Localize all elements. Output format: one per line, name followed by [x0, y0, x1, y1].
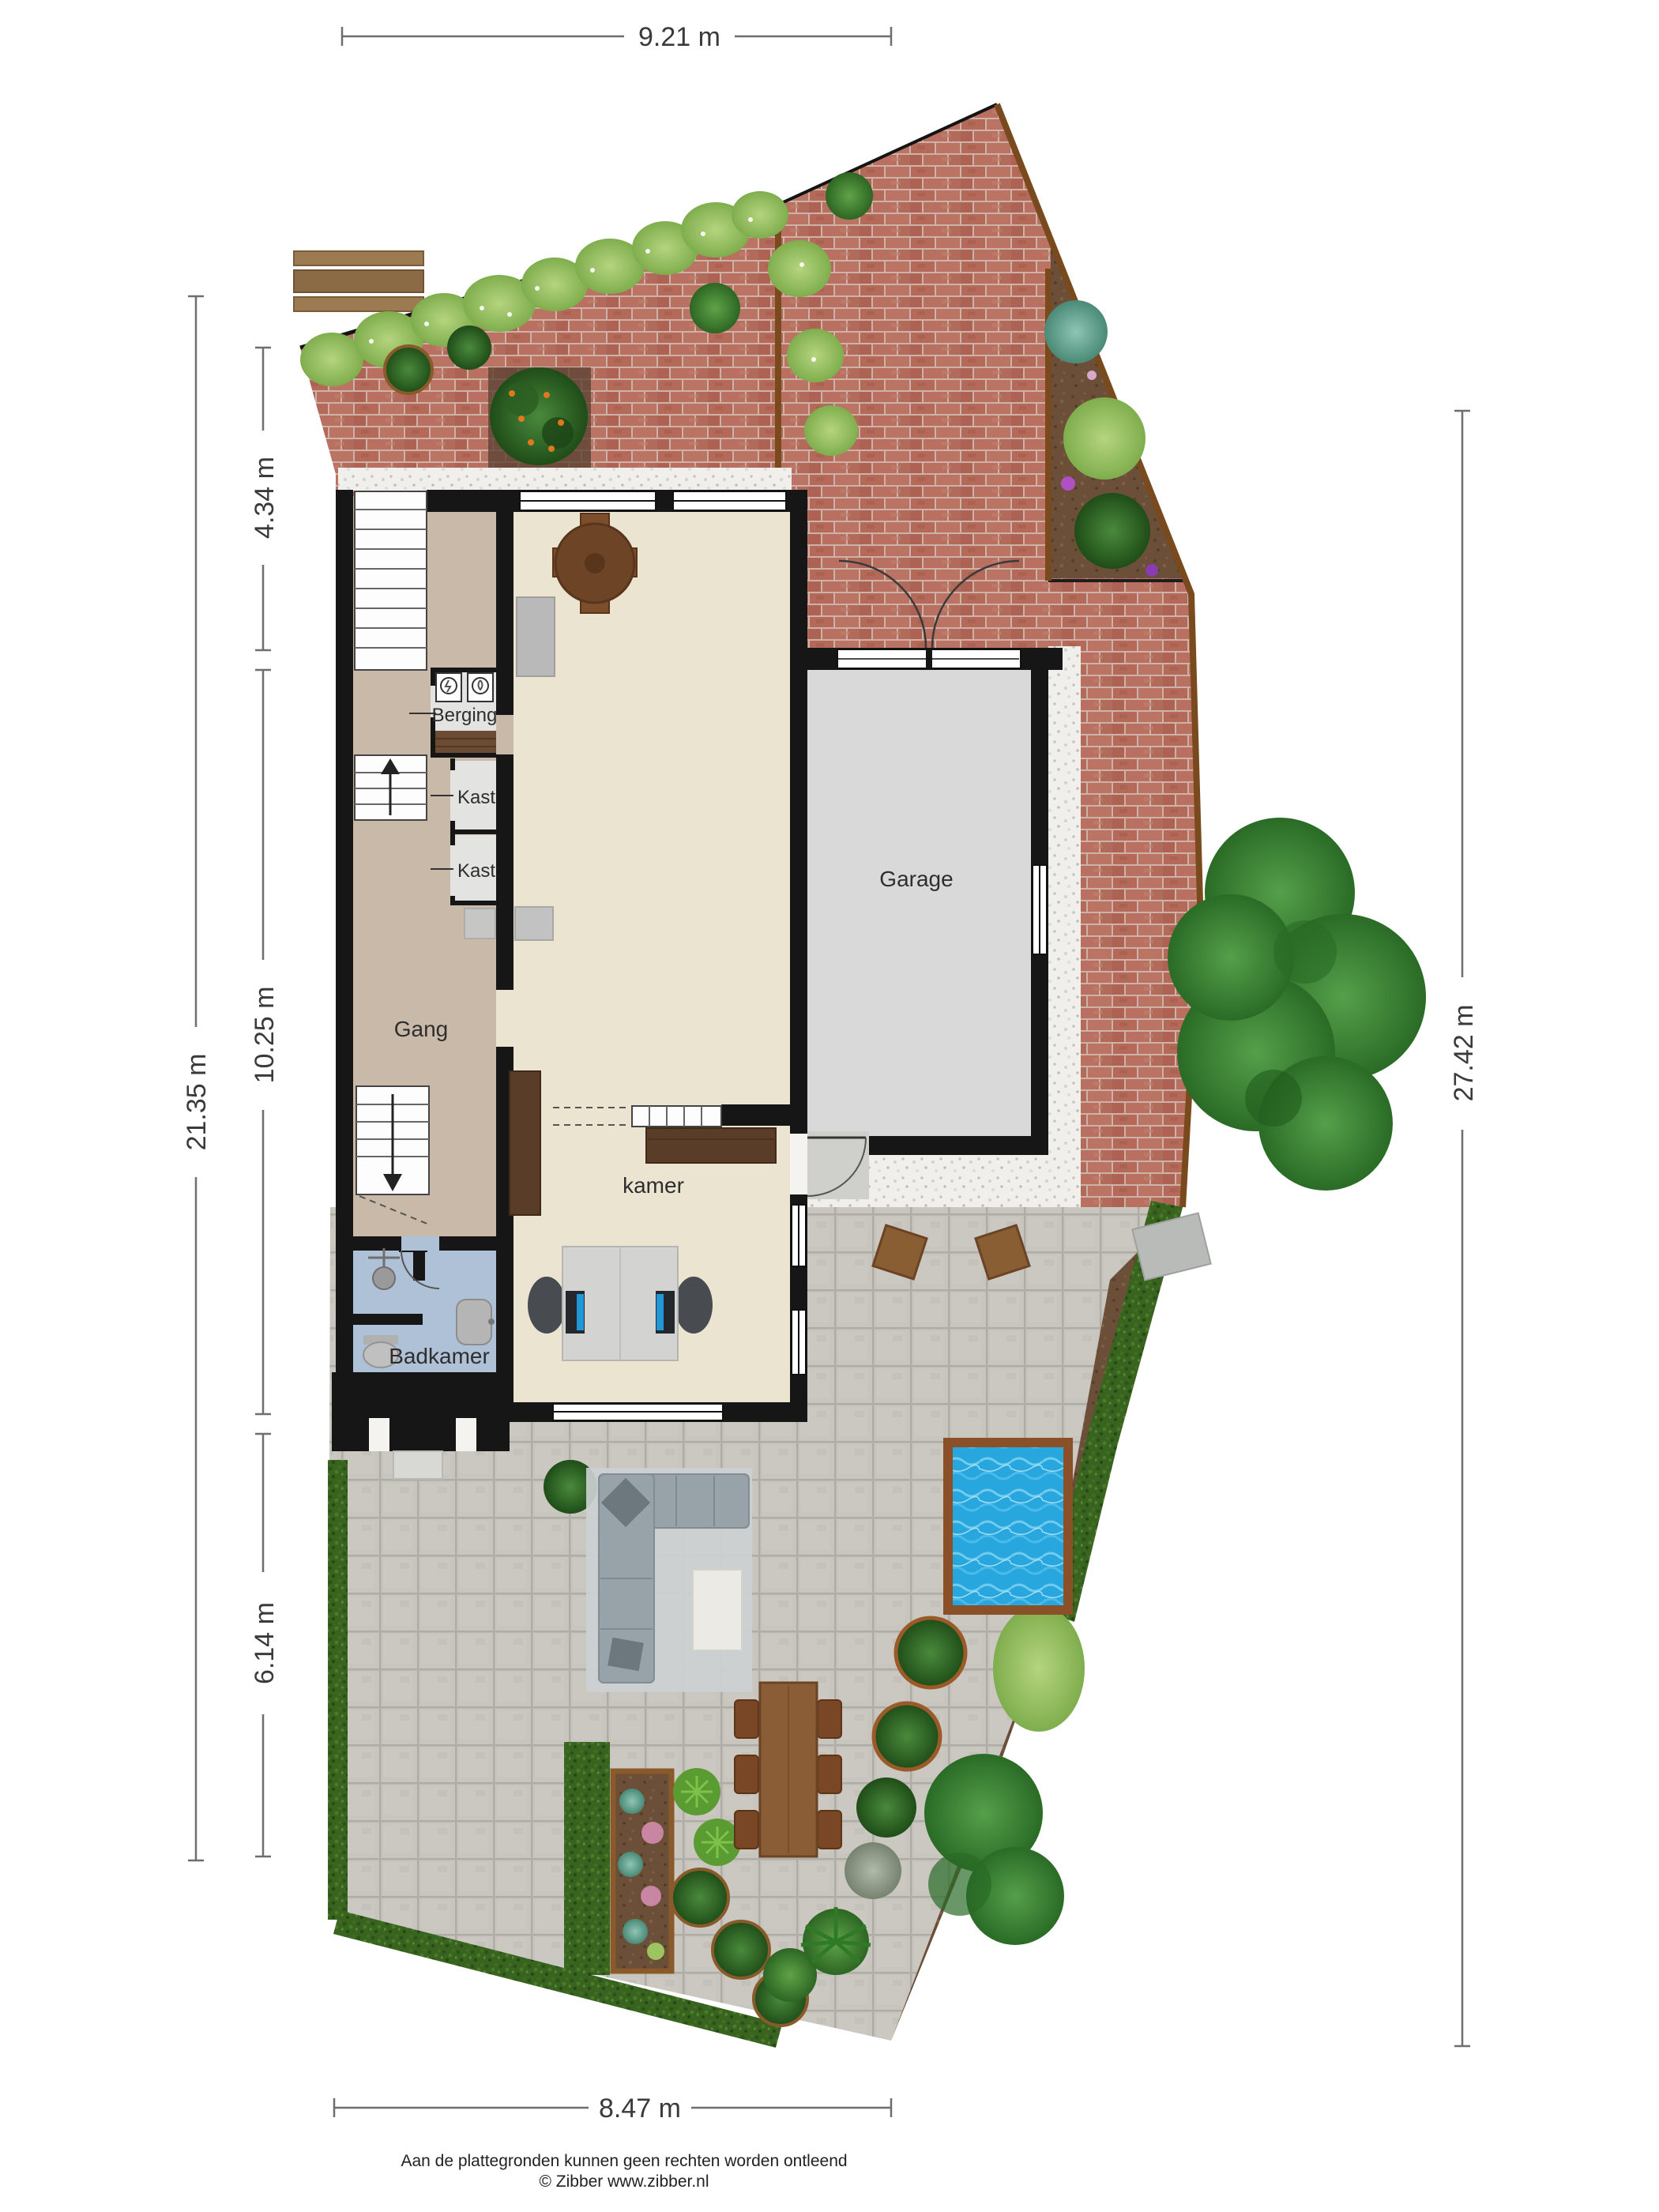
washbasin: [457, 1300, 491, 1345]
doorstep: [393, 1451, 442, 1479]
large-tree: [1168, 818, 1426, 1191]
spiky-shrub: [447, 325, 491, 370]
label-kast-lower: Kast: [457, 860, 495, 882]
potted-shrub: [385, 346, 432, 393]
shower-head-icon: [373, 1267, 395, 1289]
footer-disclaimer: Aan de plattegronden kunnen geen rechten…: [401, 2152, 847, 2170]
door-badkamer: [401, 1236, 439, 1251]
dim-left-top: 4.34 m: [250, 457, 280, 539]
label-badkamer: Badkamer: [389, 1344, 490, 1368]
dim-bottom: 8.47 m: [599, 2093, 681, 2124]
swimming-pool: [943, 1438, 1073, 1615]
door-terrace-west: [369, 1418, 389, 1451]
door-gang-eetkamer: [496, 715, 513, 754]
label-gang: Gang: [394, 1017, 449, 1041]
floor-garage: [807, 670, 1031, 1136]
office-chair-right: [675, 1277, 713, 1334]
dim-left-middle: 10.25 m: [250, 987, 280, 1084]
dim-right: 27.42 m: [1449, 1005, 1479, 1102]
hedge-west: [328, 1460, 348, 1920]
door-terrace-bath: [456, 1418, 476, 1451]
hall-cabinet: [465, 908, 495, 939]
coffee-table: [693, 1570, 742, 1650]
fern-shrub: [690, 283, 740, 333]
dim-left-outer: 21.35 m: [182, 1054, 212, 1151]
footer: Aan de plattegronden kunnen geen rechten…: [401, 2152, 847, 2191]
berging-shelf: [433, 731, 496, 754]
gravel-strip-garage-east: [1048, 646, 1081, 1207]
label-garage: Garage: [879, 867, 953, 891]
stairs-gang-up: [355, 755, 427, 820]
door-kast-lower: [450, 845, 455, 896]
dim-left-bottom: 6.14 m: [250, 1602, 280, 1684]
floorplan-page: Berging Kast Kast Gang Garage kamer Badk…: [0, 0, 1659, 2212]
sideboard-top: [646, 1128, 776, 1163]
footer-copyright: © Zibber www.zibber.nl: [539, 2172, 709, 2191]
sideboard-left: [510, 1071, 540, 1215]
throw-pillow-2: [608, 1638, 644, 1671]
label-berging: Berging: [432, 705, 498, 726]
cabinet: [517, 597, 555, 676]
garden-bench: [294, 251, 423, 311]
gravel-strip-top: [338, 468, 792, 491]
office-chair-left: [528, 1277, 566, 1334]
planter-box: [613, 1771, 671, 1971]
fern-shrub-2: [826, 172, 873, 220]
hedge-garden-divider: [564, 1742, 610, 1975]
floorplan-canvas: Berging Kast Kast Gang Garage kamer Badk…: [0, 0, 1659, 2212]
door-gang-kamer: [496, 990, 513, 1047]
door-kamer-terrace: [790, 1134, 807, 1194]
label-kast-upper: Kast: [457, 787, 495, 808]
stairs-entrance: [355, 491, 427, 670]
fruit-tree: [488, 367, 591, 468]
cabinet-2: [515, 907, 553, 940]
dim-top: 9.21 m: [638, 22, 720, 52]
outdoor-dining-set: [735, 1683, 841, 1856]
label-kamer: kamer: [623, 1173, 684, 1198]
